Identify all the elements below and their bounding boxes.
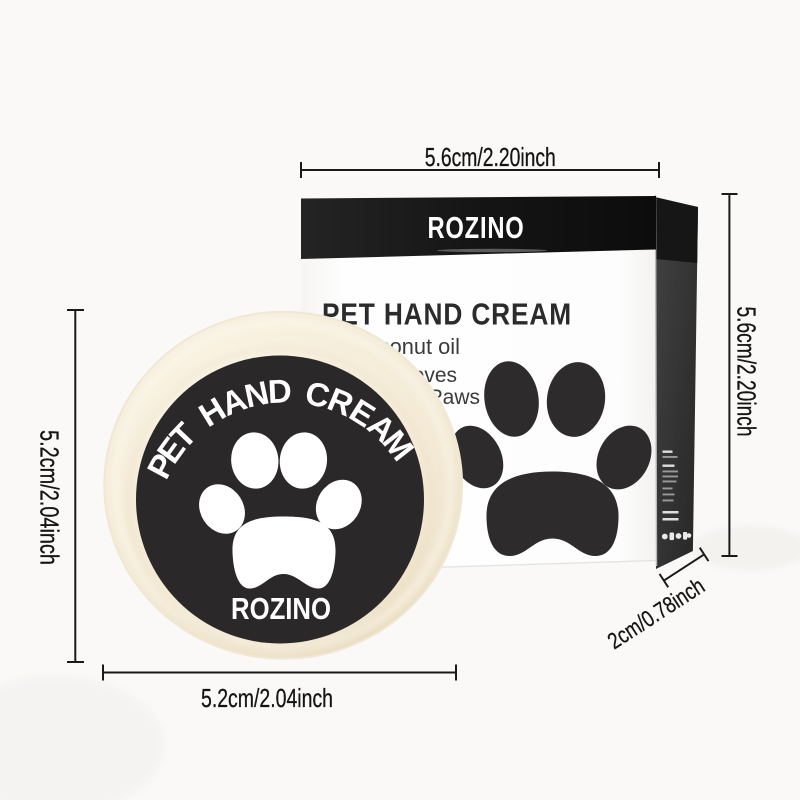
svg-text:D: D	[267, 372, 293, 410]
svg-text:5.6cm/2.20inch: 5.6cm/2.20inch	[732, 307, 762, 437]
svg-text:ROZINO: ROZINO	[428, 210, 525, 245]
svg-text:PET HAND CREAM: PET HAND CREAM	[322, 297, 572, 332]
svg-text:5.2cm/2.04inch: 5.2cm/2.04inch	[35, 430, 65, 565]
svg-text:ROZINO: ROZINO	[231, 591, 331, 626]
svg-text:5.6cm/2.20inch: 5.6cm/2.20inch	[425, 142, 556, 172]
svg-text:5.2cm/2.04inch: 5.2cm/2.04inch	[201, 683, 333, 713]
